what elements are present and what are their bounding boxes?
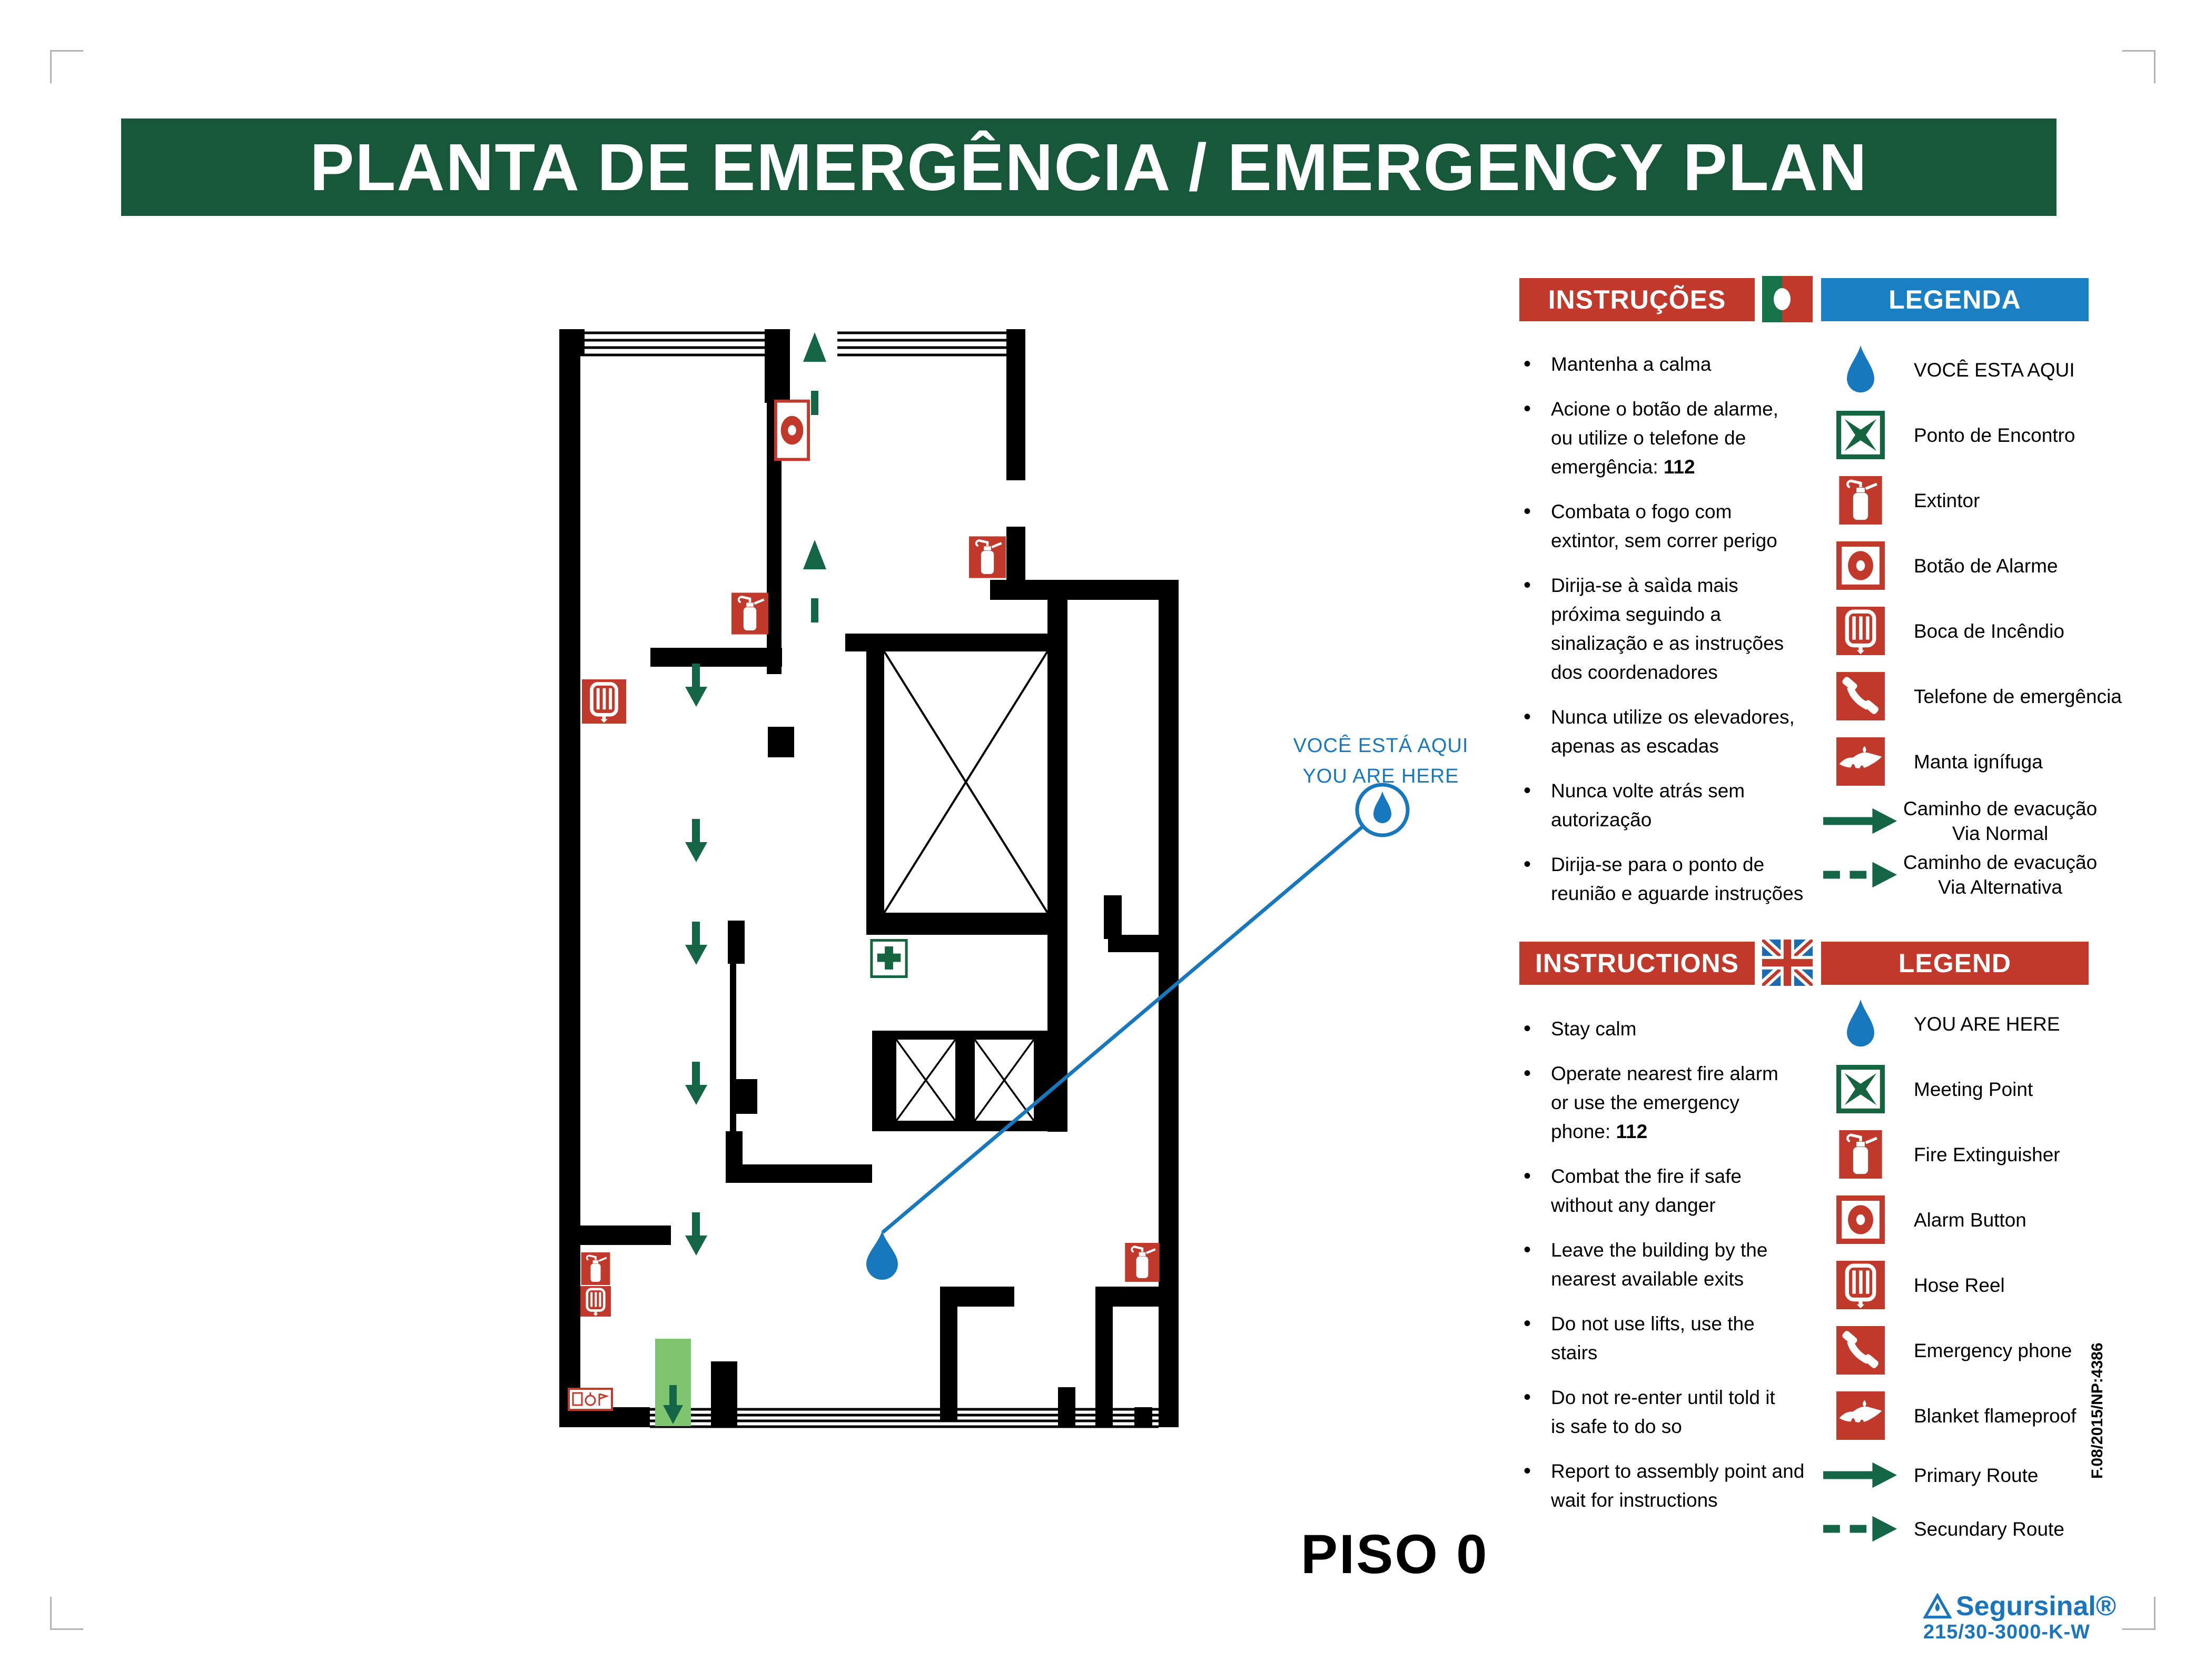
legend-label: Boca de Incêndio: [1914, 619, 2064, 644]
pt-legend-list: VOCÊ ESTA AQUIPonto de EncontroExtintorB…: [1821, 337, 2158, 902]
legend-icon-slot: [1821, 1130, 1900, 1179]
instruction-item: •Nunca volte atrás semautorização: [1524, 776, 1829, 834]
legend-icon-slot: [1821, 344, 1900, 395]
bullet-icon: •: [1524, 1309, 1551, 1367]
legend-icon-slot: [1821, 607, 1900, 655]
fire-equipment-sign-icon: [569, 1389, 612, 1410]
you-are-here-drop-icon: [866, 1231, 898, 1280]
instruction-item: •Do not re-enter until told itis safe to…: [1524, 1383, 1829, 1441]
legend-item: Blanket flameproof: [1821, 1383, 2158, 1448]
legend-icon-slot: [1821, 1460, 1900, 1490]
legend-item: Fire Extinguisher: [1821, 1122, 2158, 1187]
pt-legend-banner: LEGENDA: [1821, 278, 2089, 321]
pt-instructions-title: INSTRUÇÕES: [1548, 284, 1726, 315]
legend-icon-slot: [1821, 1326, 1900, 1375]
legend-label: Caminho de evacuçãoVia Normal: [1903, 796, 2097, 846]
pt-instructions-list: •Mantenha a calma•Acione o botão de alar…: [1524, 350, 1829, 924]
instruction-item: •Dirija-se à saìda maispróxima seguindo …: [1524, 571, 1829, 687]
floor-plan: VOCÊ ESTÁ AQUI YOU ARE HERE: [558, 305, 1511, 1480]
crop-mark-icon: [50, 50, 83, 83]
legend-label: Extintor: [1914, 488, 1980, 513]
callout-line-pt: VOCÊ ESTÁ AQUI: [1293, 734, 1469, 757]
legend-item: Alarm Button: [1821, 1187, 2158, 1252]
legend-icon-slot: [1821, 737, 1900, 786]
instruction-item: •Acione o botão de alarme,ou utilize o t…: [1524, 394, 1829, 481]
fire-blanket-icon: [1836, 737, 1885, 786]
page-title-banner: PLANTA DE EMERGÊNCIA / EMERGENCY PLAN: [121, 118, 2056, 216]
legend-label: VOCÊ ESTA AQUI: [1914, 358, 2075, 382]
legend-item: Manta ignífuga: [1821, 729, 2158, 794]
fire-extinguisher-icon: [1839, 476, 1882, 525]
legend-item: Hose Reel: [1821, 1252, 2158, 1318]
primary-route-arrow-icon: [685, 664, 707, 1256]
legend-icon-slot: [1821, 411, 1900, 459]
legend-item: Caminho de evacuçãoVia Alternativa: [1821, 848, 2158, 902]
instruction-text: Mantenha a calma: [1551, 350, 1711, 379]
instruction-item: •Report to assembly point andwait for in…: [1524, 1457, 1829, 1515]
bullet-icon: •: [1524, 497, 1551, 555]
bullet-icon: •: [1524, 1162, 1551, 1220]
legend-item: Boca de Incêndio: [1821, 598, 2158, 664]
first-aid-icon: [872, 940, 906, 976]
legend-icon-slot: [1821, 860, 1900, 890]
secondary-route-arrow-icon: [803, 332, 826, 622]
pt-instructions-banner: INSTRUÇÕES: [1519, 278, 1755, 321]
instruction-text: Combata o fogo comextintor, sem correr p…: [1551, 497, 1777, 555]
floor-label: PISO 0: [1301, 1523, 1488, 1586]
fire-extinguisher-icon: [581, 1252, 610, 1285]
legend-icon-slot: [1821, 476, 1900, 525]
instruction-text: Dirija-se à saìda maispróxima seguindo a…: [1551, 571, 1784, 687]
en-instructions-list: •Stay calm•Operate nearest fire alarmor …: [1524, 1014, 1829, 1530]
instruction-text: Acione o botão de alarme,ou utilize o te…: [1551, 394, 1778, 481]
bullet-icon: •: [1524, 1457, 1551, 1515]
legend-item: Extintor: [1821, 468, 2158, 533]
legend-item: YOU ARE HERE: [1821, 991, 2158, 1056]
emergency-exit: [655, 1339, 691, 1426]
hose-reel-icon: [1836, 1261, 1885, 1309]
pt-legend-title: LEGENDA: [1888, 284, 2021, 315]
instruction-item: •Mantenha a calma: [1524, 350, 1829, 379]
legend-item: Emergency phone: [1821, 1318, 2158, 1383]
instruction-text: Do not re-enter until told itis safe to …: [1551, 1383, 1775, 1441]
instruction-text: Operate nearest fire alarmor use the eme…: [1551, 1059, 1778, 1146]
legend-label: Caminho de evacuçãoVia Alternativa: [1903, 850, 2097, 900]
alarm-button-icon: [1836, 1195, 1885, 1244]
legend-item: Meeting Point: [1821, 1056, 2158, 1122]
primary-route-arrow-icon: [1821, 806, 1900, 836]
legend-label: Telefone de emergência: [1914, 684, 2122, 709]
instruction-text: Nunca utilize os elevadores,apenas as es…: [1551, 703, 1795, 760]
legend-label: Fire Extinguisher: [1914, 1142, 2060, 1167]
segursinal-logo-icon: [1923, 1593, 1952, 1619]
alarm-button-icon: [776, 401, 808, 460]
legend-icon-slot: [1821, 1065, 1900, 1113]
stairwell: [884, 651, 1047, 913]
model-number: 215/30-3000-K-W: [1923, 1621, 2090, 1644]
legend-icon-slot: [1821, 1261, 1900, 1309]
legend-label: Emergency phone: [1914, 1338, 2072, 1363]
fire-extinguisher-icon: [1125, 1243, 1159, 1282]
bullet-icon: •: [1524, 1383, 1551, 1441]
hose-reel-icon: [582, 679, 626, 724]
emergency-phone-icon: [1836, 672, 1885, 720]
meeting-point-icon: [1836, 411, 1885, 459]
legend-item: Telefone de emergência: [1821, 664, 2158, 729]
fire-extinguisher-icon: [1839, 1130, 1882, 1179]
fire-extinguisher-icon: [731, 592, 768, 634]
instruction-item: •Leave the building by thenearest availa…: [1524, 1236, 1829, 1293]
brand-name: Segursinal®: [1956, 1590, 2116, 1622]
meeting-point-icon: [1836, 1065, 1885, 1113]
instruction-item: •Dirija-se para o ponto dereunião e agua…: [1524, 850, 1829, 908]
legend-icon-slot: [1821, 806, 1900, 836]
instruction-item: •Operate nearest fire alarmor use the em…: [1524, 1059, 1829, 1146]
bullet-icon: •: [1524, 850, 1551, 908]
legend-icon-slot: [1821, 672, 1900, 720]
legend-item: Caminho de evacuçãoVia Normal: [1821, 794, 2158, 848]
en-legend-title: LEGEND: [1899, 948, 2011, 979]
hose-reel-icon: [580, 1286, 611, 1317]
en-legend-banner: LEGEND: [1821, 942, 2089, 985]
instruction-text: Dirija-se para o ponto dereunião e aguar…: [1551, 850, 1803, 908]
legend-icon-slot: [1821, 1391, 1900, 1440]
instruction-text: Leave the building by thenearest availab…: [1551, 1236, 1767, 1293]
en-legend-list: YOU ARE HEREMeeting PointFire Extinguish…: [1821, 991, 2158, 1556]
fire-blanket-icon: [1836, 1391, 1885, 1440]
instruction-text: Do not use lifts, use thestairs: [1551, 1309, 1755, 1367]
uk-flag-icon: [1762, 940, 1813, 986]
bullet-icon: •: [1524, 350, 1551, 379]
legend-label: Blanket flameproof: [1914, 1404, 2077, 1428]
crop-mark-icon: [2122, 1597, 2155, 1630]
bullet-icon: •: [1524, 703, 1551, 760]
legend-icon-slot: [1821, 1195, 1900, 1244]
instruction-text: Combat the fire if safewithout any dange…: [1551, 1162, 1742, 1220]
portugal-flag-icon: [1762, 276, 1813, 322]
instruction-text: Stay calm: [1551, 1014, 1636, 1043]
legend-label: Alarm Button: [1914, 1208, 2026, 1232]
bullet-icon: •: [1524, 1236, 1551, 1293]
emergency-phone-icon: [1836, 1326, 1885, 1375]
you-are-here-icon: [1844, 344, 1877, 395]
legend-icon-slot: [1821, 1514, 1900, 1544]
you-are-here-icon: [1844, 999, 1877, 1049]
legend-icon-slot: [1821, 999, 1900, 1049]
legend-label: Ponto de Encontro: [1914, 423, 2075, 448]
legend-label: Manta ignífuga: [1914, 749, 2043, 774]
legend-item: Secundary Route: [1821, 1502, 2158, 1556]
page-title: PLANTA DE EMERGÊNCIA / EMERGENCY PLAN: [310, 129, 1867, 205]
legend-item: Ponto de Encontro: [1821, 402, 2158, 468]
instruction-item: •Stay calm: [1524, 1014, 1829, 1043]
legend-icon-slot: [1821, 541, 1900, 590]
legend-item: VOCÊ ESTA AQUI: [1821, 337, 2158, 402]
hose-reel-icon: [1836, 607, 1885, 655]
callout-line-en: YOU ARE HERE: [1302, 765, 1459, 787]
primary-route-arrow-icon: [1821, 1460, 1900, 1490]
legend-label: Meeting Point: [1914, 1077, 2033, 1102]
alarm-button-icon: [1836, 541, 1885, 590]
instruction-item: •Combat the fire if safewithout any dang…: [1524, 1162, 1829, 1220]
en-instructions-title: INSTRUCTIONS: [1535, 948, 1739, 979]
fire-extinguisher-icon: [969, 536, 1006, 578]
legend-label: YOU ARE HERE: [1914, 1012, 2060, 1036]
instruction-item: •Combata o fogo comextintor, sem correr …: [1524, 497, 1829, 555]
bullet-icon: •: [1524, 394, 1551, 481]
crop-mark-icon: [50, 1597, 83, 1630]
instruction-text: Report to assembly point andwait for ins…: [1551, 1457, 1804, 1515]
en-instructions-banner: INSTRUCTIONS: [1519, 942, 1755, 985]
emergency-plan-poster: PLANTA DE EMERGÊNCIA / EMERGENCY PLAN: [0, 0, 2205, 1680]
bullet-icon: •: [1524, 571, 1551, 687]
legend-item: Botão de Alarme: [1821, 533, 2158, 598]
instruction-text: Nunca volte atrás semautorização: [1551, 776, 1745, 834]
legend-label: Hose Reel: [1914, 1273, 2005, 1298]
legend-label: Secundary Route: [1914, 1517, 2064, 1541]
legend-label: Primary Route: [1914, 1463, 2038, 1488]
instruction-item: •Do not use lifts, use thestairs: [1524, 1309, 1829, 1367]
brand-logo: Segursinal®: [1923, 1590, 2116, 1622]
legend-item: Primary Route: [1821, 1448, 2158, 1502]
secondary-route-arrow-icon: [1821, 860, 1900, 890]
bullet-icon: •: [1524, 1059, 1551, 1146]
instruction-item: •Nunca utilize os elevadores,apenas as e…: [1524, 703, 1829, 760]
bullet-icon: •: [1524, 1014, 1551, 1043]
bullet-icon: •: [1524, 776, 1551, 834]
secondary-route-arrow-icon: [1821, 1514, 1900, 1544]
legend-label: Botão de Alarme: [1914, 554, 2058, 578]
crop-mark-icon: [2122, 50, 2155, 83]
document-reference: F.08/2015/NP:4386: [2089, 1342, 2107, 1479]
